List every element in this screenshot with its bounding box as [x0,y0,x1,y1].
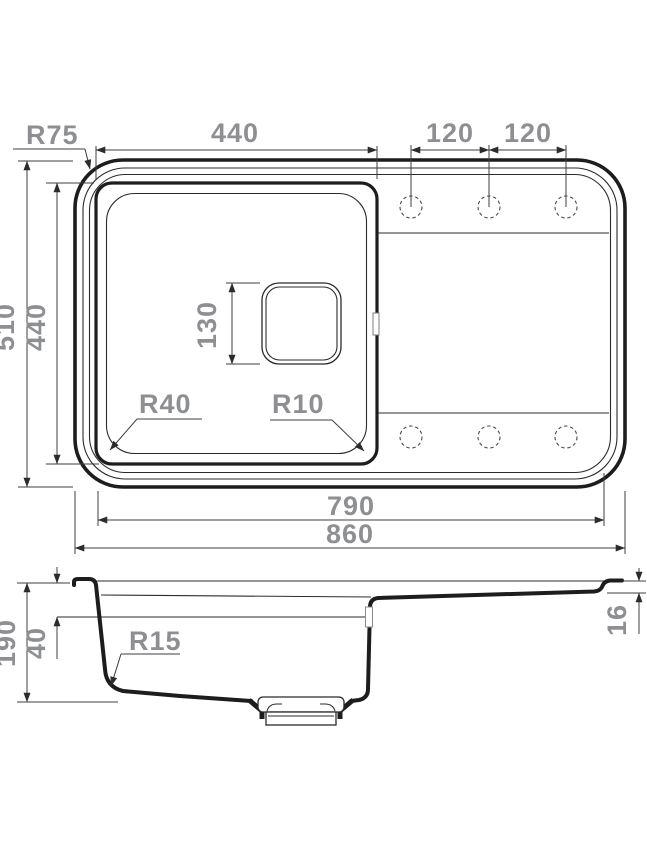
dim-label-hole-pitch-1: 120 [426,118,474,148]
dim-label-r10: R10 [272,389,325,419]
dim-label-r40: R40 [139,389,192,419]
faucet-hole-bottom-1 [400,426,422,448]
dim-label-bowl-width: 440 [211,118,259,148]
technical-drawing-page: R75 440 120 120 510 440 130 R40 [0,0,647,847]
drain-body-outline [266,712,336,725]
dim-label-drainboard-drop: 16 [602,604,632,636]
dim-label-drain-size: 130 [192,301,222,349]
dim-label-overall-width: 860 [326,519,374,549]
dim-label-bowl-depth: 440 [21,303,51,351]
dim-label-rim-inner-width: 790 [327,491,375,521]
drain-flange-outline [258,697,344,712]
drainboard-profile [351,581,622,702]
r10-leader-line [332,420,364,451]
overflow-slot-side-view [366,607,373,627]
faucet-hole-bottom-3 [555,426,577,448]
dim-label-hole-pitch-2: 120 [504,118,552,148]
rim-back-edge-line [101,595,371,597]
dim-label-r75: R75 [26,120,79,150]
dim-label-overall-height: 190 [0,619,21,667]
dim-label-r15: R15 [129,626,182,656]
r75-leader-line [85,149,90,169]
r40-leader-line [110,419,137,450]
drain-hole-outer-outline [262,283,341,364]
sink-technical-drawing: R75 440 120 120 510 440 130 R40 [0,0,647,847]
overflow-slot-top-view [373,313,379,335]
dim-label-overflow-depth: 40 [21,627,51,659]
rim-inner-edge-outline [83,168,617,479]
deck-inner-outline [90,175,611,473]
dim-label-overall-depth: 510 [0,303,20,351]
faucet-hole-bottom-2 [478,426,500,448]
r15-leader-line [111,654,121,686]
